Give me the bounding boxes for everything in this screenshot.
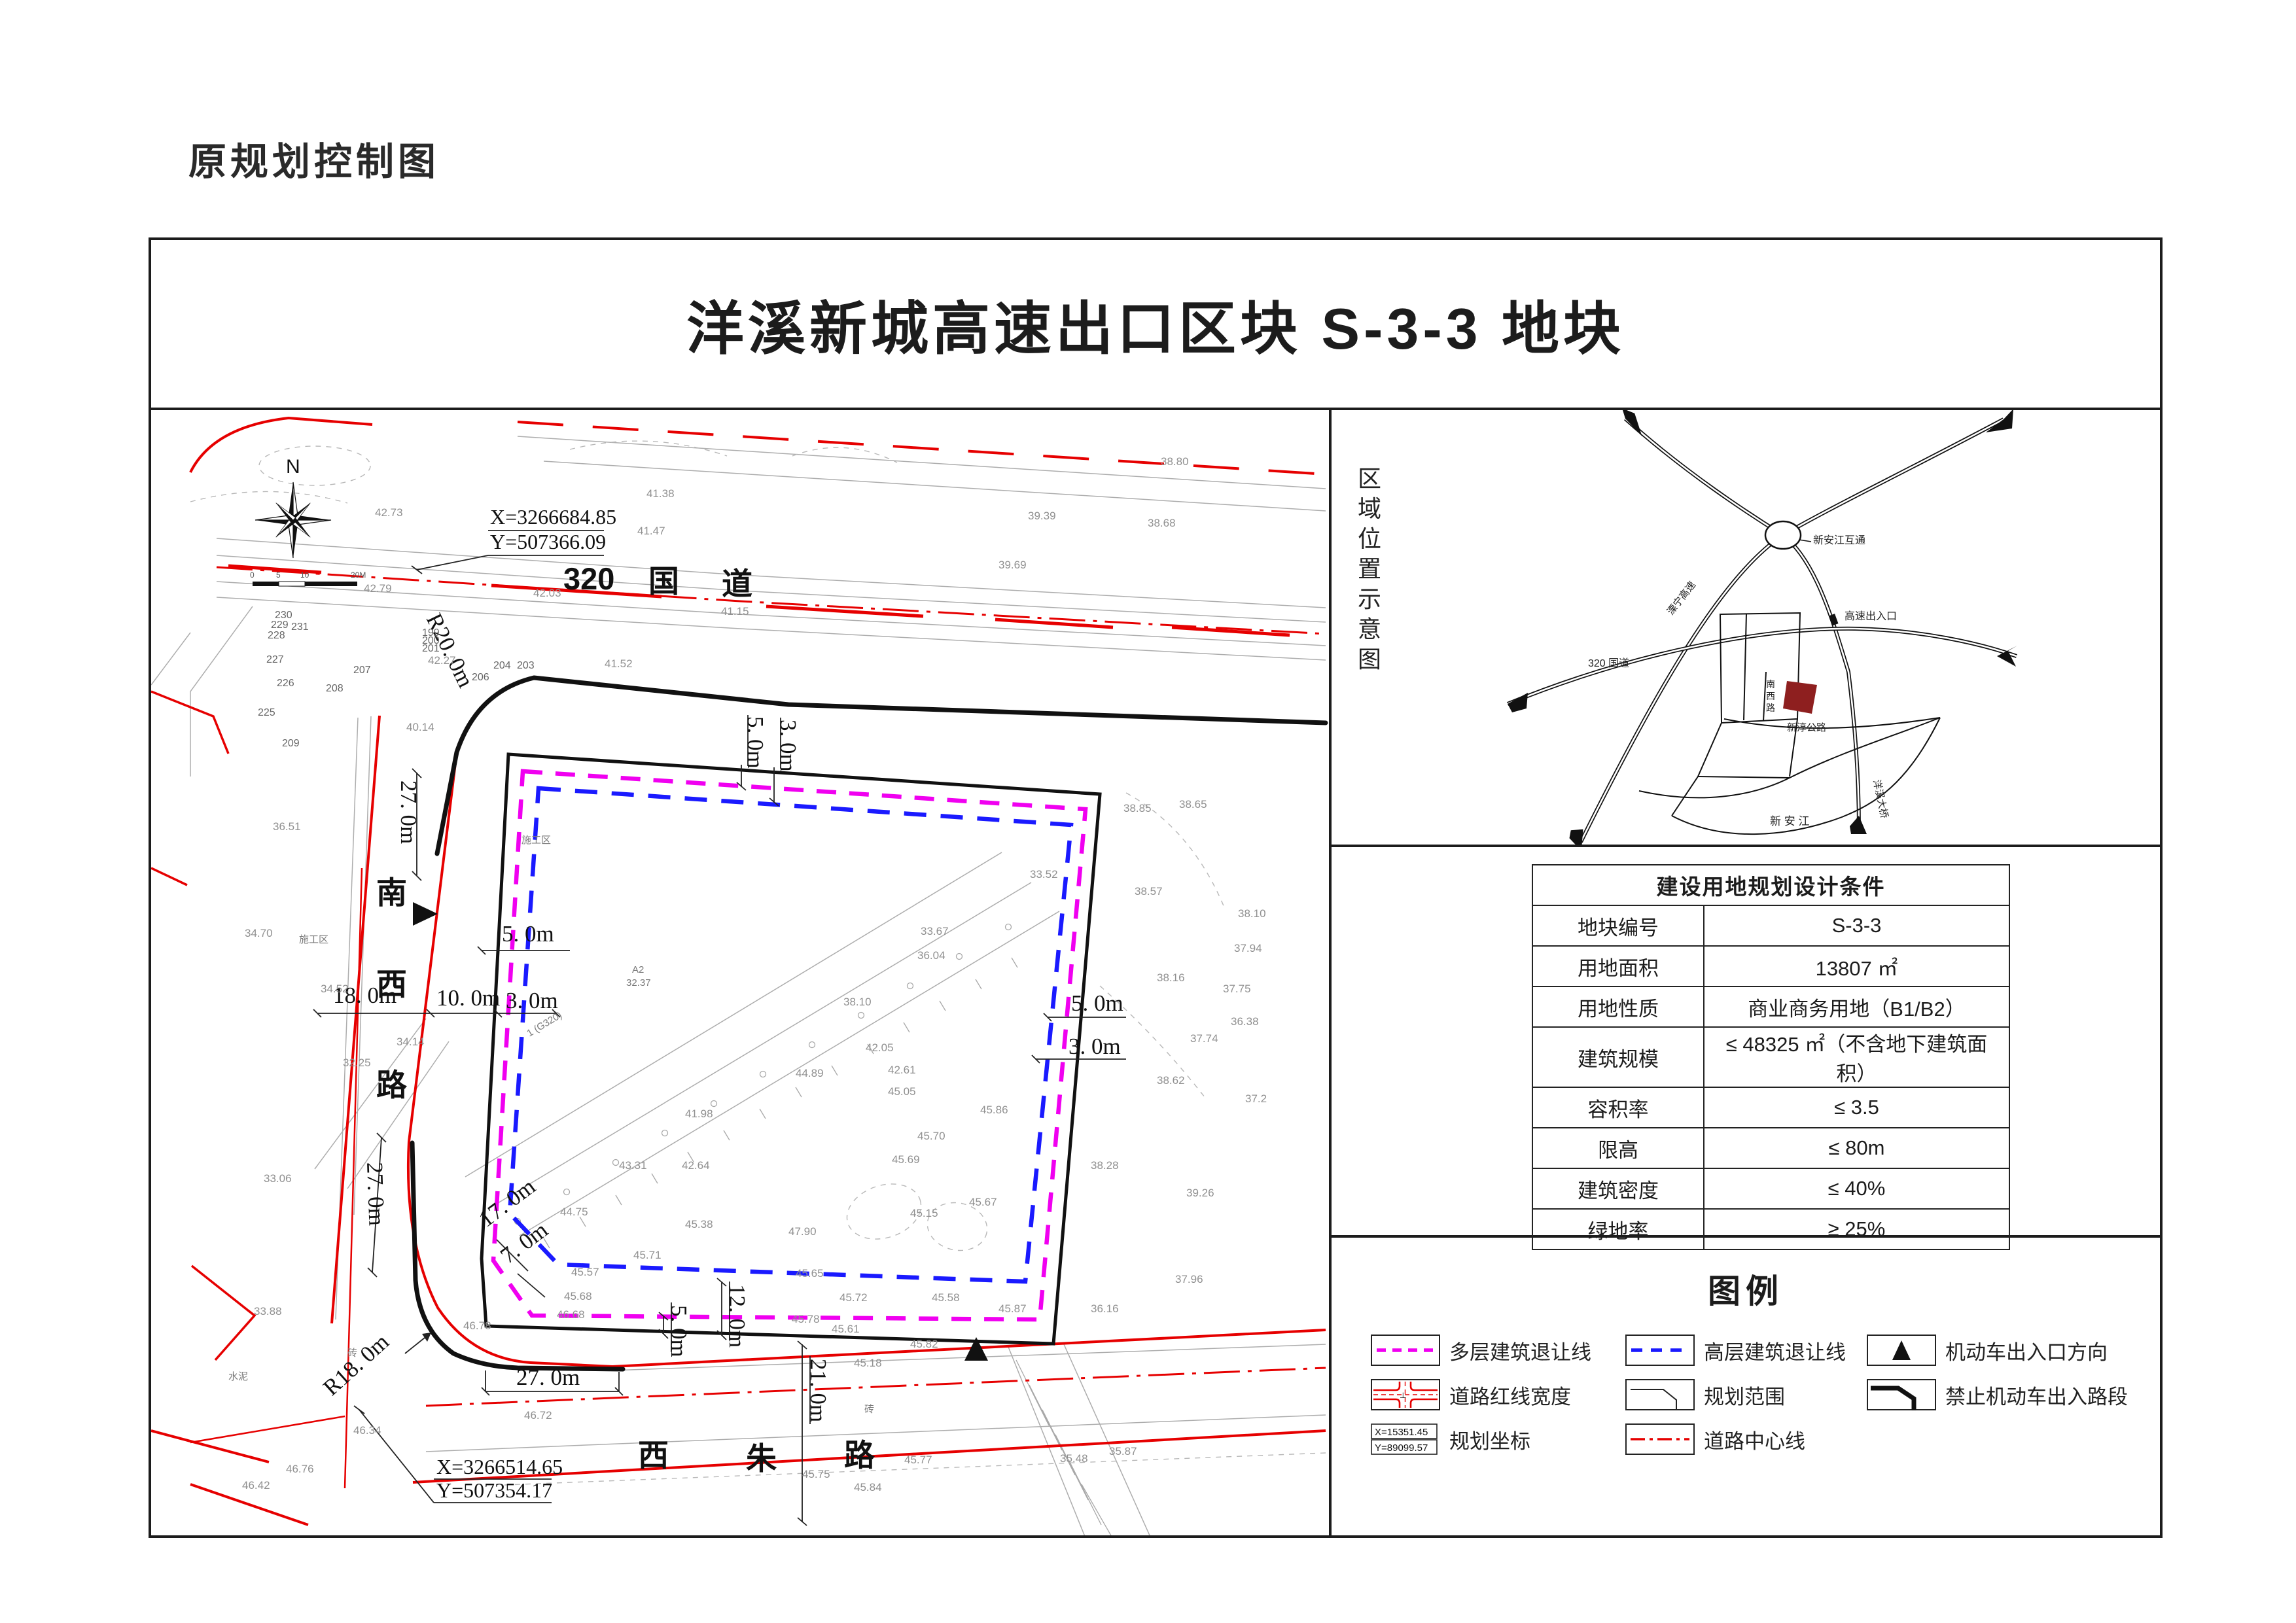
- spot-elevation: 41.47: [637, 525, 665, 537]
- spot-elevation: 45.57: [571, 1266, 599, 1278]
- location-sketch: 新安江互通溧宁高速高速出入口320 国道南西路新淳公路洋溪大桥新 安 江: [1332, 410, 2160, 845]
- svg-text:20M: 20M: [351, 570, 366, 580]
- spot-elevation: 35.48: [1060, 1452, 1088, 1465]
- spot-elevation: 38.68: [1148, 517, 1176, 529]
- road-name: 国: [648, 564, 679, 599]
- dimension-label: 3. 0m: [1069, 1034, 1121, 1059]
- spot-elevation: 38.28: [1091, 1159, 1119, 1172]
- parcel-number: 231: [291, 621, 309, 633]
- map-annotation: 砖: [864, 1404, 874, 1415]
- parcel-number: 209: [282, 738, 300, 749]
- spot-elevation: 45.71: [633, 1249, 662, 1261]
- spot-elevation: 46.42: [242, 1479, 270, 1492]
- dimension-label: 27. 0m: [516, 1365, 580, 1390]
- dimension-label: 12. 0m: [724, 1284, 750, 1348]
- sketch-label: 西: [1766, 691, 1775, 701]
- spot-elevation: 38.10: [843, 996, 872, 1008]
- road-redline-icon: ⊥: [1371, 1379, 1440, 1410]
- spot-elevation: 42.27: [428, 654, 456, 667]
- map-annotation: 水泥: [228, 1371, 248, 1382]
- parcel-number: 208: [326, 683, 344, 694]
- sketch-label: 高速出入口: [1845, 610, 1897, 622]
- spot-elevation: 45.18: [854, 1357, 882, 1369]
- spot-elevation: 32.25: [343, 1056, 371, 1069]
- svg-text:⊥: ⊥: [1400, 1391, 1406, 1400]
- spot-elevation: 45.58: [932, 1291, 960, 1304]
- spot-elevation: 33.88: [254, 1305, 282, 1318]
- dimension-label: 27. 0m: [396, 780, 421, 844]
- sketch-label: 南: [1766, 679, 1775, 689]
- spot-elevation: 36.16: [1091, 1302, 1119, 1315]
- spot-elevation: 41.15: [721, 605, 749, 618]
- map-annotation: 32.37: [626, 977, 651, 988]
- spot-elevation: 45.78: [792, 1313, 820, 1325]
- map-annotation: 1 (G320): [525, 1009, 564, 1039]
- spot-elevation: 43.31: [619, 1159, 647, 1172]
- coordinate-label: Y=507366.09: [490, 530, 606, 553]
- road-name: 朱: [746, 1441, 777, 1476]
- parcel-number: 207: [353, 665, 371, 676]
- sketch-label: 新 安 江: [1770, 815, 1809, 828]
- spot-elevation: 42.64: [682, 1159, 710, 1172]
- legend-item: 规划范围: [1625, 1379, 1785, 1410]
- coordinate-label: X=3266684.85: [490, 505, 616, 529]
- legend-title: 图例: [1332, 1265, 2160, 1312]
- spot-elevation: 38.10: [1238, 907, 1266, 920]
- spot-elevation: 38.85: [1123, 802, 1152, 814]
- legend-item: 道路中心线: [1625, 1423, 1805, 1455]
- map-annotation: A2: [632, 964, 644, 975]
- parcel-number: 201: [422, 643, 440, 654]
- sketch-label: 溧宁高速: [1665, 580, 1698, 618]
- planning-boundary: [482, 754, 1100, 1344]
- sketch-label: 320 国道: [1588, 657, 1629, 669]
- dimension-label: 21. 0m: [805, 1359, 831, 1422]
- dimension-label: 5. 0m: [1071, 990, 1123, 1016]
- parcel-number: 206: [472, 672, 489, 683]
- spot-elevation: 39.39: [1028, 510, 1056, 522]
- r18-arrowhead: [422, 1333, 431, 1342]
- spot-elevation: 36.38: [1231, 1015, 1259, 1028]
- spot-elevation: 46.68: [557, 1308, 585, 1321]
- table-row: 建筑密度≤ 40%: [1532, 1168, 2009, 1209]
- dimension-label: 5. 0m: [502, 921, 554, 947]
- legend-item: ⊥ 道路红线宽度: [1371, 1379, 1571, 1410]
- spot-elevation: 39.26: [1186, 1187, 1214, 1199]
- sketch-label: 路: [1766, 703, 1775, 713]
- conditions-table: 建设用地规划设计条件 地块编号S-3-3 用地面积13807 ㎡ 用地性质商业商…: [1532, 864, 2010, 1250]
- spot-elevation: 34.14: [397, 1036, 425, 1048]
- legend-section: 图例 多层建筑退让线 高层建筑退让线: [1332, 1238, 2160, 1535]
- sketch-label: 洋溪大桥: [1871, 778, 1890, 819]
- dimension-label: 3. 0m: [506, 988, 558, 1013]
- spot-elevation: 46.72: [524, 1409, 552, 1422]
- svg-text:N: N: [286, 456, 300, 478]
- legend-item: 多层建筑退让线: [1371, 1335, 1591, 1366]
- spot-elevation: 45.15: [910, 1207, 938, 1219]
- spot-elevation: 45.84: [854, 1481, 882, 1493]
- road-name: 320: [563, 561, 614, 596]
- table-row: 建筑规模≤ 48325 ㎡（不含地下建筑面积）: [1532, 1027, 2009, 1087]
- location-sketch-section: 区域位置示意图: [1332, 410, 2160, 847]
- legend-item: 高层建筑退让线: [1625, 1335, 1846, 1366]
- conditions-section: 建设用地规划设计条件 地块编号S-3-3 用地面积13807 ㎡ 用地性质商业商…: [1332, 847, 2160, 1238]
- dimension-lines: [313, 531, 1126, 1526]
- spot-elevation: 45.70: [917, 1130, 945, 1142]
- table-row: 容积率≤ 3.5: [1532, 1087, 2009, 1128]
- multi-setback-icon: [1371, 1335, 1440, 1366]
- plan-map: N 051020M 320国道南西路西朱路X=3266684.85Y=50736…: [151, 410, 1329, 1535]
- svg-text:0: 0: [250, 570, 255, 580]
- spot-elevation: 33.67: [921, 925, 949, 937]
- road-name: 路: [376, 1068, 408, 1102]
- spot-elevation: 42.03: [533, 587, 561, 599]
- map-annotation: 砖: [347, 1348, 357, 1359]
- parcel-number: 227: [266, 654, 284, 665]
- coordinate-label: X=3266514.65: [436, 1455, 563, 1478]
- road-name: 西: [638, 1438, 669, 1473]
- spot-elevation: 45.61: [832, 1323, 860, 1335]
- table-title: 建设用地规划设计条件: [1532, 865, 2009, 905]
- spot-elevation: 35.87: [1109, 1445, 1137, 1457]
- legend-item: 机动车出入口方向: [1867, 1335, 2108, 1366]
- sketch-panel-title: 区域位置示意图: [1358, 464, 1385, 674]
- spot-elevation: 45.38: [685, 1218, 713, 1230]
- sheet-title: 洋溪新城高速出口区块 S-3-3 地块: [151, 240, 2160, 410]
- coordinate-label: Y=507354.17: [436, 1478, 552, 1502]
- legend-item: X=15351.45 Y=89099.57 规划坐标: [1371, 1423, 1530, 1455]
- parcel-number: 228: [268, 630, 285, 641]
- svg-text:10: 10: [300, 570, 309, 580]
- dimension-label: 5. 0m: [743, 716, 768, 769]
- north-arrow-icon: N: [255, 456, 331, 558]
- spot-elevation: 45.65: [796, 1267, 824, 1280]
- svg-text:Y=89099.57: Y=89099.57: [1375, 1442, 1428, 1454]
- spot-elevation: 42.61: [888, 1064, 916, 1076]
- spot-elevation: 37.96: [1175, 1273, 1203, 1285]
- parcel-number: 204: [493, 660, 511, 671]
- spot-elevation: 41.52: [605, 657, 633, 670]
- sketch-site-block: [1783, 681, 1817, 714]
- spot-elevation: 38.65: [1179, 798, 1207, 811]
- spot-elevation: 34.52: [321, 983, 349, 995]
- spot-elevation: 42.79: [364, 582, 392, 595]
- spot-elevation: 33.52: [1030, 868, 1058, 881]
- interchange-circle: [1765, 521, 1801, 549]
- spot-elevation: 41.98: [685, 1108, 713, 1120]
- dimension-label: 5. 0m: [666, 1305, 692, 1357]
- spot-elevation: 45.72: [839, 1291, 868, 1304]
- spot-elevation: 42.73: [375, 506, 403, 519]
- spot-elevation: 36.04: [917, 949, 945, 962]
- dimension-label: 3. 0m: [775, 720, 801, 772]
- plan-map-panel: N 051020M 320国道南西路西朱路X=3266684.85Y=50736…: [151, 410, 1329, 1535]
- spot-elevation: 41.38: [646, 487, 675, 500]
- parcel-number: 226: [277, 678, 294, 689]
- road-centerline-icon: [1625, 1423, 1695, 1455]
- road-name: 南: [376, 875, 407, 910]
- no-vehicle-access-icon: [1867, 1379, 1936, 1410]
- dimension-label: 27. 0m: [362, 1162, 389, 1227]
- sketch-label: 新淳公路: [1787, 722, 1826, 733]
- spot-elevation: 45.75: [802, 1468, 830, 1480]
- sketch-arrowheads: [1508, 410, 2017, 845]
- spot-elevation: 45.05: [888, 1085, 916, 1098]
- interchange-leader: [1799, 540, 1811, 542]
- parcel-number: 229: [271, 620, 289, 631]
- road-name: 路: [844, 1438, 875, 1473]
- parcel-number: 225: [258, 707, 275, 718]
- spot-elevation: 45.87: [998, 1302, 1027, 1315]
- table-row: 用地性质商业商务用地（B1/B2）: [1532, 986, 2009, 1027]
- drawing-sheet: 洋溪新城高速出口区块 S-3-3 地块: [149, 237, 2163, 1538]
- parcel-number: 203: [517, 660, 535, 671]
- spot-elevation: 37.94: [1234, 942, 1262, 954]
- entrance-triangle-west: [413, 902, 438, 926]
- spot-elevation: 46.34: [353, 1424, 381, 1437]
- page-title: 原规划控制图: [188, 131, 440, 186]
- dimension-label: R18. 0m: [318, 1329, 394, 1401]
- spot-elevation: 38.62: [1157, 1074, 1185, 1087]
- spot-elevation: 40.14: [406, 721, 434, 733]
- sketch-roads: [1508, 419, 2017, 842]
- svg-text:5: 5: [276, 570, 281, 580]
- high-setback-icon: [1625, 1335, 1695, 1366]
- spot-elevation: 45.77: [904, 1454, 932, 1466]
- spot-elevation: 46.76: [286, 1463, 314, 1475]
- spot-elevation: 42.05: [866, 1041, 894, 1054]
- spot-elevation: 34.70: [245, 927, 273, 939]
- spot-elevation: 36.51: [273, 820, 301, 833]
- road-name: 道: [722, 567, 752, 601]
- spot-elevation: 45.68: [564, 1290, 592, 1302]
- spot-elevation: 39.69: [998, 559, 1027, 571]
- spot-elevation: 38.16: [1157, 971, 1185, 984]
- dimension-label: 10. 0m: [436, 985, 500, 1011]
- spot-elevation: 45.86: [980, 1104, 1008, 1116]
- spot-elevation: 45.67: [969, 1196, 997, 1208]
- entrance-direction-icon: [1867, 1335, 1936, 1366]
- dimension-label: 7. 0m: [495, 1217, 552, 1268]
- spot-elevation: 44.75: [560, 1206, 588, 1218]
- spot-elevation: 44.89: [796, 1067, 824, 1079]
- table-row: 地块编号S-3-3: [1532, 905, 2009, 946]
- svg-text:X=15351.45: X=15351.45: [1375, 1427, 1428, 1438]
- spot-elevation: 38.57: [1135, 885, 1163, 898]
- plan-coordinate-icon: X=15351.45 Y=89099.57: [1371, 1423, 1440, 1455]
- plan-boundary-icon: [1625, 1379, 1695, 1410]
- spot-elevation: 47.90: [788, 1225, 817, 1238]
- legend-item: 禁止机动车出入路段: [1867, 1379, 2128, 1410]
- table-row: 用地面积13807 ㎡: [1532, 946, 2009, 986]
- table-row: 限高≤ 80m: [1532, 1128, 2009, 1168]
- spot-elevation: 33.06: [264, 1172, 292, 1185]
- spot-elevation: 37.74: [1190, 1032, 1218, 1045]
- map-annotation: 施工区: [521, 835, 551, 846]
- sketch-label: 新安江互通: [1813, 534, 1865, 546]
- spot-elevation: 45.69: [892, 1153, 920, 1166]
- spot-elevation: 45.82: [910, 1338, 938, 1350]
- scale-bar: 051020M: [250, 570, 366, 586]
- spot-elevation: 38.80: [1161, 455, 1189, 468]
- spot-elevation: 37.75: [1223, 983, 1251, 995]
- spot-elevation: 46.78: [463, 1319, 491, 1332]
- spot-elevation: 37.2: [1245, 1092, 1267, 1105]
- map-annotation: 施工区: [299, 934, 328, 945]
